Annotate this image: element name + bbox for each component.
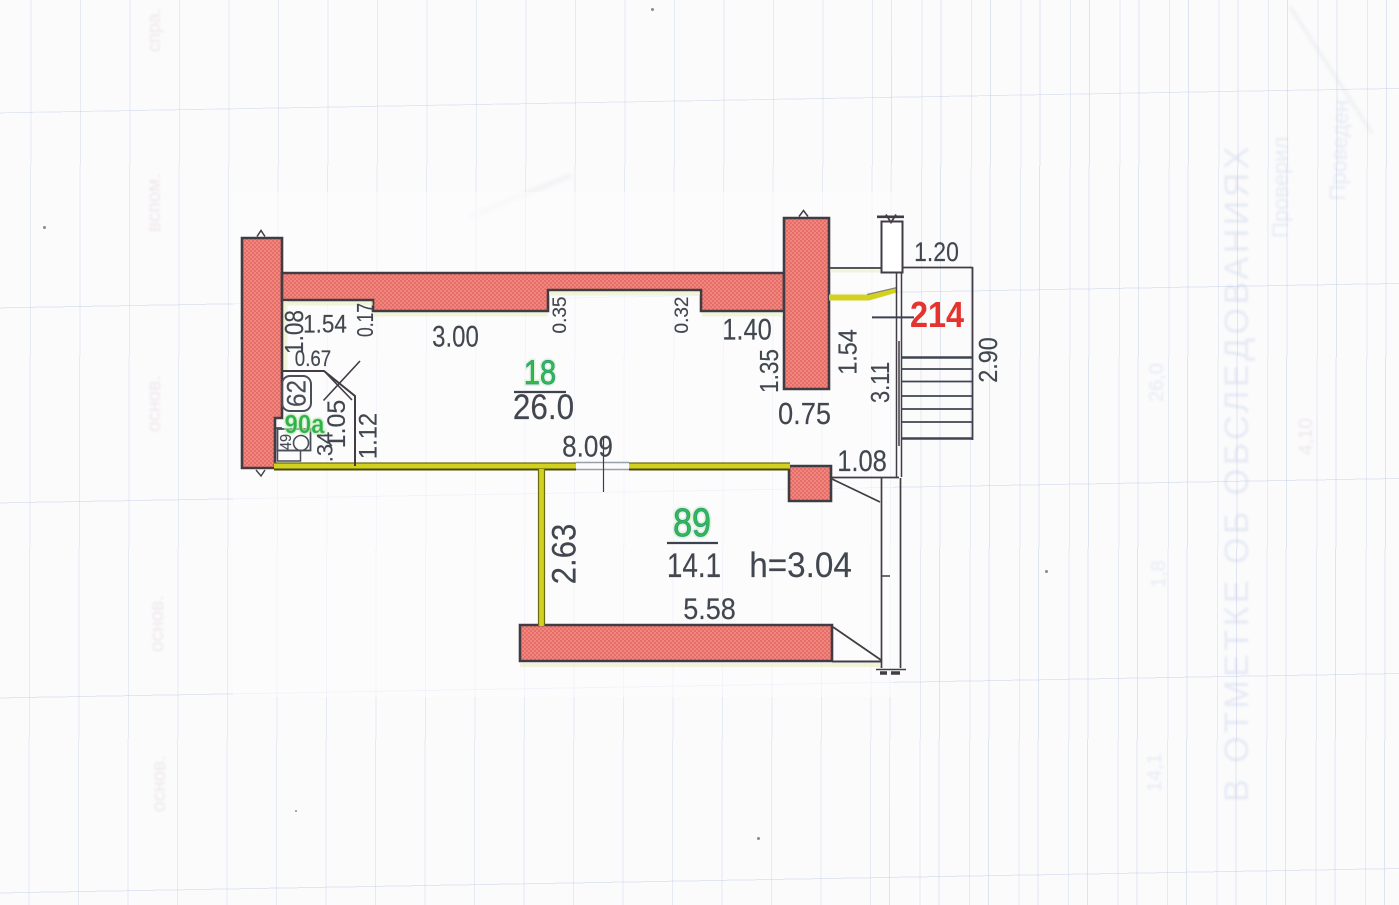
svg-text:3.11: 3.11 [866,362,895,403]
svg-text:1.12: 1.12 [355,413,383,459]
svg-text:0.35: 0.35 [550,297,571,334]
svg-text:14.1: 14.1 [667,546,721,584]
svg-text:2.90: 2.90 [975,337,1003,383]
svg-text:1.20: 1.20 [914,237,959,267]
svg-text:1.08: 1.08 [837,444,887,477]
svg-text:18: 18 [524,353,556,392]
svg-text:0.17: 0.17 [354,303,379,337]
svg-text:26.0: 26.0 [513,389,574,428]
svg-text:89: 89 [673,499,711,544]
svg-text:1.08: 1.08 [281,310,310,354]
svg-text:0.32: 0.32 [672,297,693,334]
svg-text:214: 214 [910,296,964,336]
svg-text:90a: 90a [285,410,326,439]
svg-text:1.40: 1.40 [722,313,772,346]
svg-text:8.09: 8.09 [562,430,613,463]
svg-text:1.54: 1.54 [834,329,862,375]
svg-text:1.54: 1.54 [303,310,347,338]
svg-text:h=3.04: h=3.04 [749,546,852,585]
svg-text:3.00: 3.00 [432,319,479,353]
svg-text:5.58: 5.58 [683,593,736,627]
svg-text:0.75: 0.75 [778,398,831,432]
svg-text:2.63: 2.63 [544,524,583,585]
svg-text:1.35: 1.35 [756,349,785,393]
svg-text:62: 62 [282,380,311,407]
